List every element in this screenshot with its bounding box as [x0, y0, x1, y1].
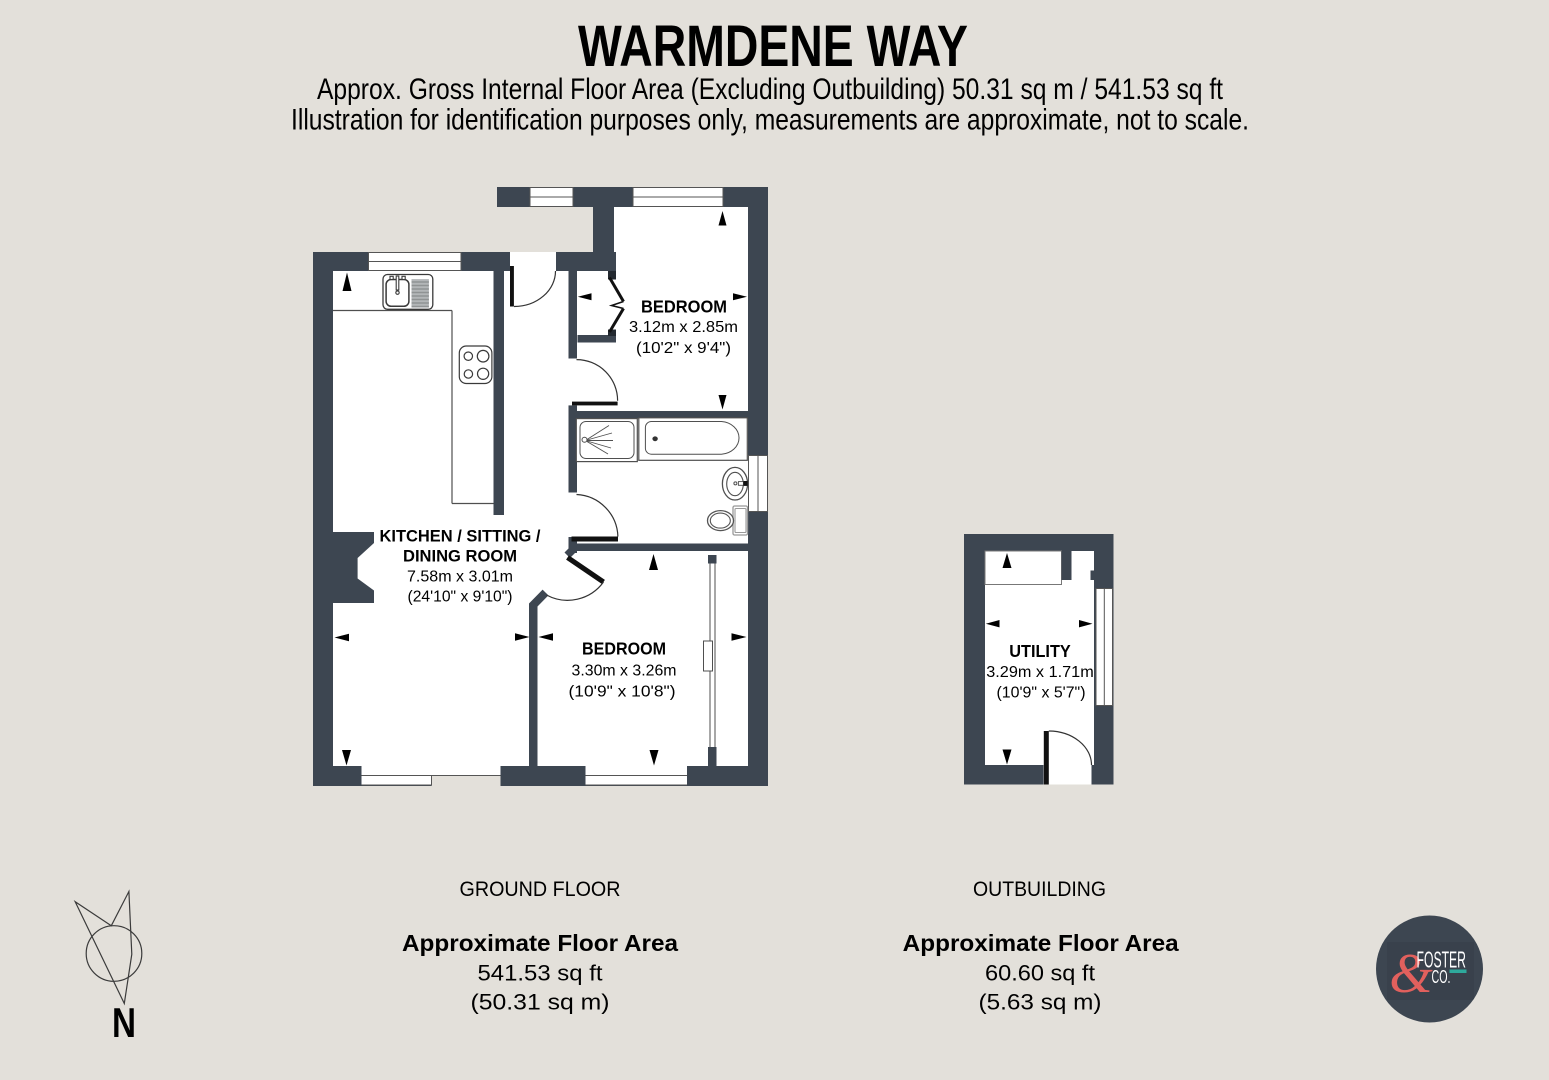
svg-text:(10'2" x 9'4"): (10'2" x 9'4"): [636, 340, 731, 357]
svg-text:541.53 sq ft: 541.53 sq ft: [478, 961, 603, 986]
svg-text:(50.31 sq m): (50.31 sq m): [471, 990, 610, 1015]
svg-text:3.30m x 3.26m: 3.30m x 3.26m: [572, 663, 677, 680]
svg-text:N: N: [112, 999, 136, 1046]
svg-text:CO.: CO.: [1432, 967, 1451, 987]
svg-text:(5.63 sq m): (5.63 sq m): [979, 990, 1102, 1015]
svg-text:GROUND FLOOR: GROUND FLOOR: [460, 877, 621, 901]
svg-text:(10'9" x 10'8"): (10'9" x 10'8"): [569, 683, 676, 700]
svg-text:60.60 sq ft: 60.60 sq ft: [985, 961, 1095, 986]
svg-text:Illustration for identificatio: Illustration for identification purposes…: [291, 103, 1249, 136]
svg-text:BEDROOM: BEDROOM: [641, 297, 727, 317]
svg-text:WARMDENE WAY: WARMDENE WAY: [578, 14, 968, 79]
svg-text:Approximate Floor Area: Approximate Floor Area: [402, 930, 679, 956]
svg-text:UTILITY: UTILITY: [1009, 641, 1071, 661]
svg-text:3.12m x 2.85m: 3.12m x 2.85m: [629, 319, 738, 336]
svg-text:BEDROOM: BEDROOM: [582, 639, 666, 659]
svg-text:OUTBUILDING: OUTBUILDING: [973, 877, 1106, 901]
svg-text:Approximate Floor Area: Approximate Floor Area: [903, 930, 1180, 956]
svg-text:(24'10" x 9'10"): (24'10" x 9'10"): [408, 589, 513, 606]
svg-text:KITCHEN / SITTING /: KITCHEN / SITTING /: [380, 526, 541, 545]
svg-text:(10'9" x 5'7"): (10'9" x 5'7"): [997, 685, 1086, 702]
svg-text:Approx. Gross Internal Floor A: Approx. Gross Internal Floor Area (Exclu…: [317, 73, 1224, 106]
svg-text:3.29m x 1.71m: 3.29m x 1.71m: [986, 664, 1094, 681]
svg-text:7.58m x 3.01m: 7.58m x 3.01m: [407, 568, 513, 585]
svg-text:DINING ROOM: DINING ROOM: [403, 546, 517, 565]
